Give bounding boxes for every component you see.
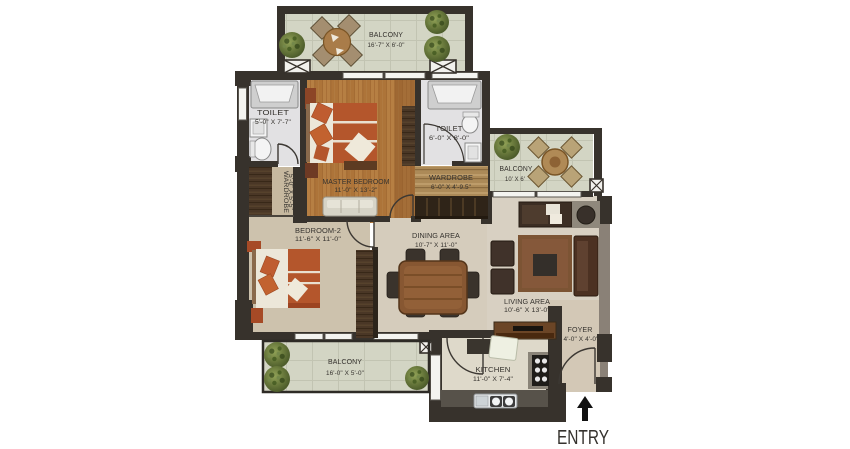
svg-text:KITCHEN: KITCHEN: [476, 365, 511, 374]
svg-text:TOILET: TOILET: [257, 108, 289, 117]
svg-text:6'-0" X 4'-9.5": 6'-0" X 4'-9.5": [431, 184, 472, 191]
svg-text:5'-0" X 7'-7": 5'-0" X 7'-7": [255, 119, 292, 126]
svg-text:BALCONY: BALCONY: [369, 30, 403, 39]
svg-text:TOILET: TOILET: [436, 124, 463, 133]
svg-text:LIVING AREA: LIVING AREA: [504, 297, 550, 306]
svg-text:10'-7" X 11'-0": 10'-7" X 11'-0": [415, 242, 458, 249]
svg-text:MASTER BEDROOM: MASTER BEDROOM: [323, 177, 390, 186]
svg-text:6'-0" X 8'-0": 6'-0" X 8'-0": [429, 135, 470, 142]
svg-text:BALCONY: BALCONY: [328, 357, 362, 366]
svg-text:11'-0" X 13'-2": 11'-0" X 13'-2": [335, 187, 379, 194]
svg-text:WARDROBE: WARDROBE: [429, 173, 473, 182]
svg-text:4'-0" X 4'-0": 4'-0" X 4'-0": [564, 336, 600, 343]
svg-text:FOYER: FOYER: [568, 325, 593, 334]
svg-text:11'-6" X 11'-0": 11'-6" X 11'-0": [295, 236, 342, 243]
svg-text:ENTRY: ENTRY: [557, 427, 609, 449]
svg-text:5'-0" X 5'-5": 5'-0" X 5'-5": [287, 174, 294, 211]
svg-text:16'-7" X 6'-0": 16'-7" X 6'-0": [368, 42, 406, 49]
svg-text:DINING AREA: DINING AREA: [412, 231, 460, 240]
svg-text:BEDROOM-2: BEDROOM-2: [295, 226, 341, 235]
svg-text:11'-0" X 7'-4": 11'-0" X 7'-4": [473, 376, 514, 383]
svg-text:10'-6" X 13'-0": 10'-6" X 13'-0": [504, 307, 551, 314]
svg-text:16'-0" X 5'-0": 16'-0" X 5'-0": [326, 370, 365, 377]
svg-text:10' X 6': 10' X 6': [505, 176, 525, 183]
svg-text:BALCONY: BALCONY: [500, 164, 533, 173]
